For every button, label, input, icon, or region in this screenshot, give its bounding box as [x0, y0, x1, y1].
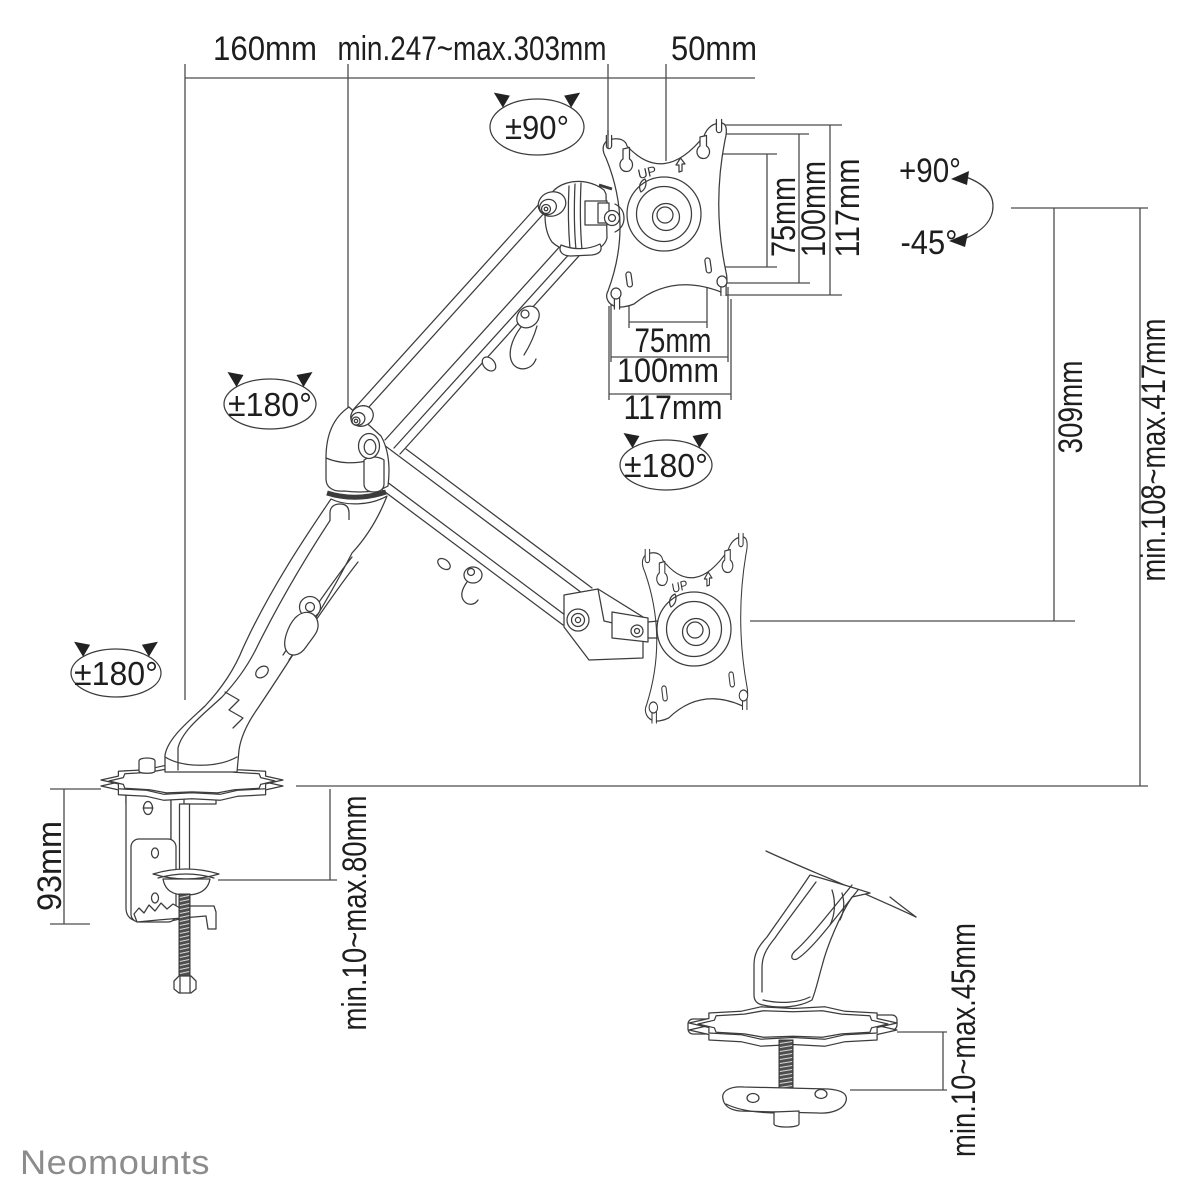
- svg-text:min.247~max.303mm: min.247~max.303mm: [338, 30, 607, 68]
- svg-text:160mm: 160mm: [213, 30, 317, 68]
- svg-text:309mm: 309mm: [1052, 361, 1090, 454]
- svg-text:+90°: +90°: [899, 152, 961, 190]
- svg-text:±180°: ±180°: [228, 386, 312, 423]
- svg-text:±180°: ±180°: [624, 447, 708, 484]
- svg-text:93mm: 93mm: [31, 821, 69, 911]
- svg-text:-45°: -45°: [901, 224, 958, 262]
- svg-text:min.10~max.80mm: min.10~max.80mm: [336, 796, 374, 1031]
- svg-text:±90°: ±90°: [505, 109, 569, 146]
- svg-text:100mm: 100mm: [795, 161, 833, 257]
- svg-text:Neomounts: Neomounts: [20, 1144, 210, 1182]
- svg-text:117mm: 117mm: [829, 159, 867, 258]
- svg-text:±180°: ±180°: [74, 655, 158, 692]
- svg-text:50mm: 50mm: [671, 30, 757, 68]
- svg-text:min.10~max.45mm: min.10~max.45mm: [945, 923, 983, 1157]
- svg-text:min.108~max.417mm: min.108~max.417mm: [1135, 319, 1173, 582]
- svg-text:117mm: 117mm: [624, 389, 723, 427]
- svg-text:100mm: 100mm: [617, 352, 719, 390]
